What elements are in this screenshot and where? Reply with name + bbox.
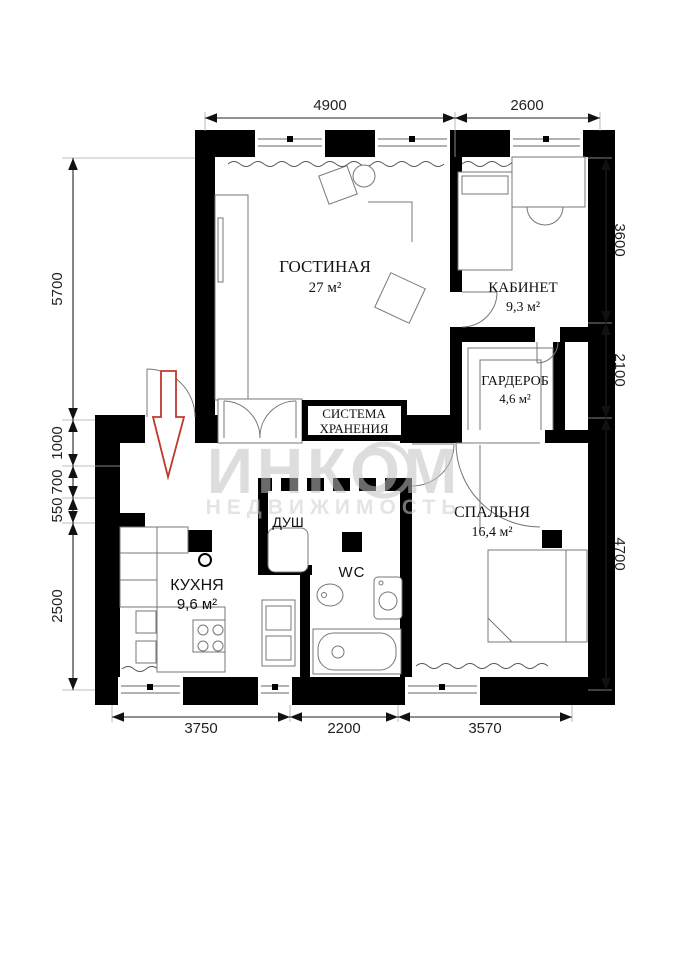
dim-bottom-2: 3570 [468, 720, 501, 737]
dim-right-2: 4700 [611, 537, 628, 570]
dim-left-0: 5700 [49, 272, 66, 305]
room-area-bedroom: 16,4 м² [471, 525, 512, 540]
kitchen-sink [199, 554, 211, 566]
side-table [353, 165, 375, 187]
room-area-office: 9,3 м² [506, 300, 540, 315]
chair [319, 166, 357, 204]
dim-left-4: 2500 [49, 589, 66, 622]
dim-top-0: 4900 [313, 97, 346, 114]
dim-left-3: 550 [49, 497, 66, 522]
dim-right-0: 3600 [611, 223, 628, 256]
dim-bottom-1: 2200 [327, 720, 360, 737]
bathtub [313, 629, 401, 674]
wc-sink [317, 584, 343, 606]
dim-left-2: 700 [49, 469, 66, 494]
dim-bottom-0: 3750 [184, 720, 217, 737]
room-area-kitchen: 9,6 м² [177, 596, 217, 613]
watermark: ИНКОМ НЕДВИЖИМОСТЬ [206, 435, 463, 519]
storage-label-line2: ХРАНЕНИЯ [319, 421, 388, 436]
office-bed [458, 172, 512, 270]
kitchen-chair [136, 611, 156, 633]
dim-left-1: 1000 [49, 426, 66, 459]
office-chair [527, 207, 563, 225]
floor-plan-drawing: СИСТЕМА ХРАНЕНИЯ ГОСТИНАЯ 27 м² КАБИНЕТ … [0, 0, 679, 960]
entry-arrow [153, 371, 184, 477]
watermark-subtitle: НЕДВИЖИМОСТЬ [206, 496, 463, 519]
washing-machine [374, 577, 402, 619]
living-desk [368, 202, 412, 242]
armchair [375, 273, 425, 323]
dim-right-1: 2100 [611, 353, 628, 386]
room-label-wc: WC [339, 564, 366, 581]
room-area-wardrobe: 4,6 м² [499, 391, 531, 406]
room-label-office: КАБИНЕТ [488, 280, 557, 296]
kitchen-island [157, 607, 225, 672]
wardrobe-shelving [468, 348, 553, 430]
storage-system-box: СИСТЕМА ХРАНЕНИЯ [305, 403, 404, 438]
room-label-kitchen: КУХНЯ [170, 577, 223, 594]
shower-tray [268, 528, 308, 572]
room-label-living: ГОСТИНАЯ [279, 257, 371, 276]
room-label-wardrobe: ГАРДЕРОБ [481, 374, 549, 389]
dim-top-1: 2600 [510, 97, 543, 114]
floor-plan-page: СИСТЕМА ХРАНЕНИЯ ГОСТИНАЯ 27 м² КАБИНЕТ … [0, 0, 679, 960]
room-label-bedroom: СПАЛЬНЯ [454, 504, 530, 521]
office-door [462, 292, 497, 327]
room-area-living: 27 м² [309, 280, 342, 296]
storage-label-line1: СИСТЕМА [322, 406, 386, 421]
kitchen-chair [136, 641, 156, 663]
office-desk [512, 157, 585, 207]
bedroom-bed [488, 550, 587, 642]
living-wardrobe [215, 195, 248, 400]
